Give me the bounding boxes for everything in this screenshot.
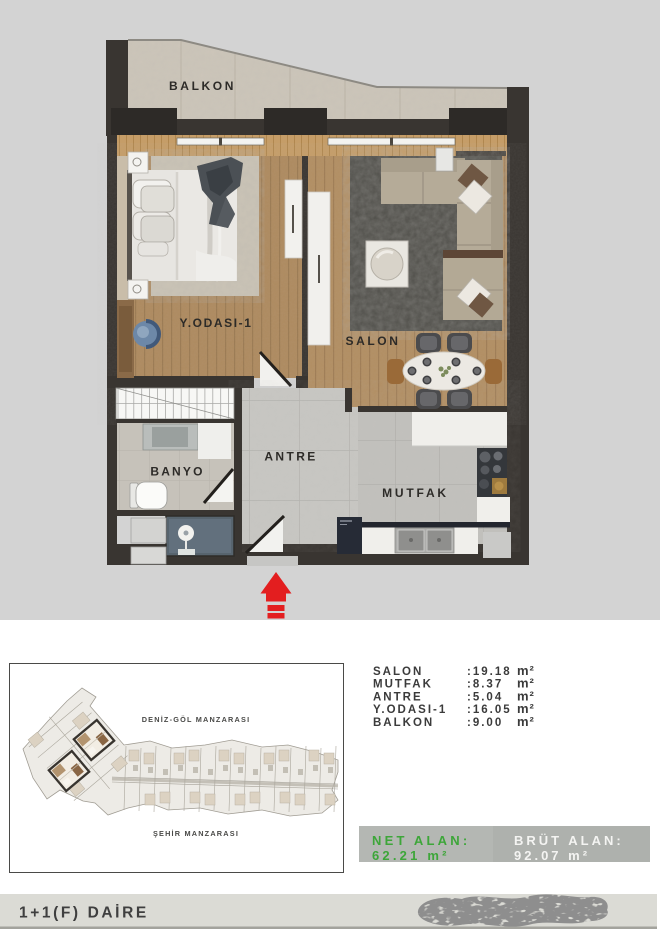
svg-text:ANTRE: ANTRE: [264, 450, 317, 464]
svg-text:Y.ODASI-1: Y.ODASI-1: [179, 316, 252, 330]
svg-text::5.04: :5.04: [467, 691, 503, 703]
svg-text::19.18: :19.18: [467, 666, 512, 678]
svg-text:MUTFAK: MUTFAK: [373, 679, 433, 691]
svg-text::8.37: :8.37: [467, 679, 503, 691]
svg-text:m²: m²: [517, 714, 535, 729]
svg-text:NET ALAN:: NET ALAN:: [372, 833, 470, 848]
svg-text:BRÜT ALAN:: BRÜT ALAN:: [514, 833, 624, 848]
svg-text:BALKON: BALKON: [169, 79, 236, 93]
svg-text:ANTRE: ANTRE: [373, 691, 423, 703]
svg-text:92.07 m²: 92.07 m²: [514, 848, 590, 863]
svg-text:1+1(F) DAİRE: 1+1(F) DAİRE: [19, 905, 149, 922]
svg-text:MUTFAK: MUTFAK: [382, 486, 449, 500]
svg-text:BANYO: BANYO: [150, 465, 204, 479]
svg-text:62.21 m²: 62.21 m²: [372, 848, 450, 863]
svg-text:SALON: SALON: [346, 334, 401, 348]
svg-text:Y.ODASI-1: Y.ODASI-1: [373, 704, 447, 716]
svg-text:DENİZ-GÖL MANZARASI: DENİZ-GÖL MANZARASI: [142, 715, 251, 724]
svg-text:ŞEHİR MANZARASI: ŞEHİR MANZARASI: [153, 829, 239, 838]
svg-text:SALON: SALON: [373, 666, 423, 678]
svg-text:BALKON: BALKON: [373, 717, 434, 729]
svg-text::9.00: :9.00: [467, 717, 503, 729]
svg-text::16.05: :16.05: [467, 704, 512, 716]
